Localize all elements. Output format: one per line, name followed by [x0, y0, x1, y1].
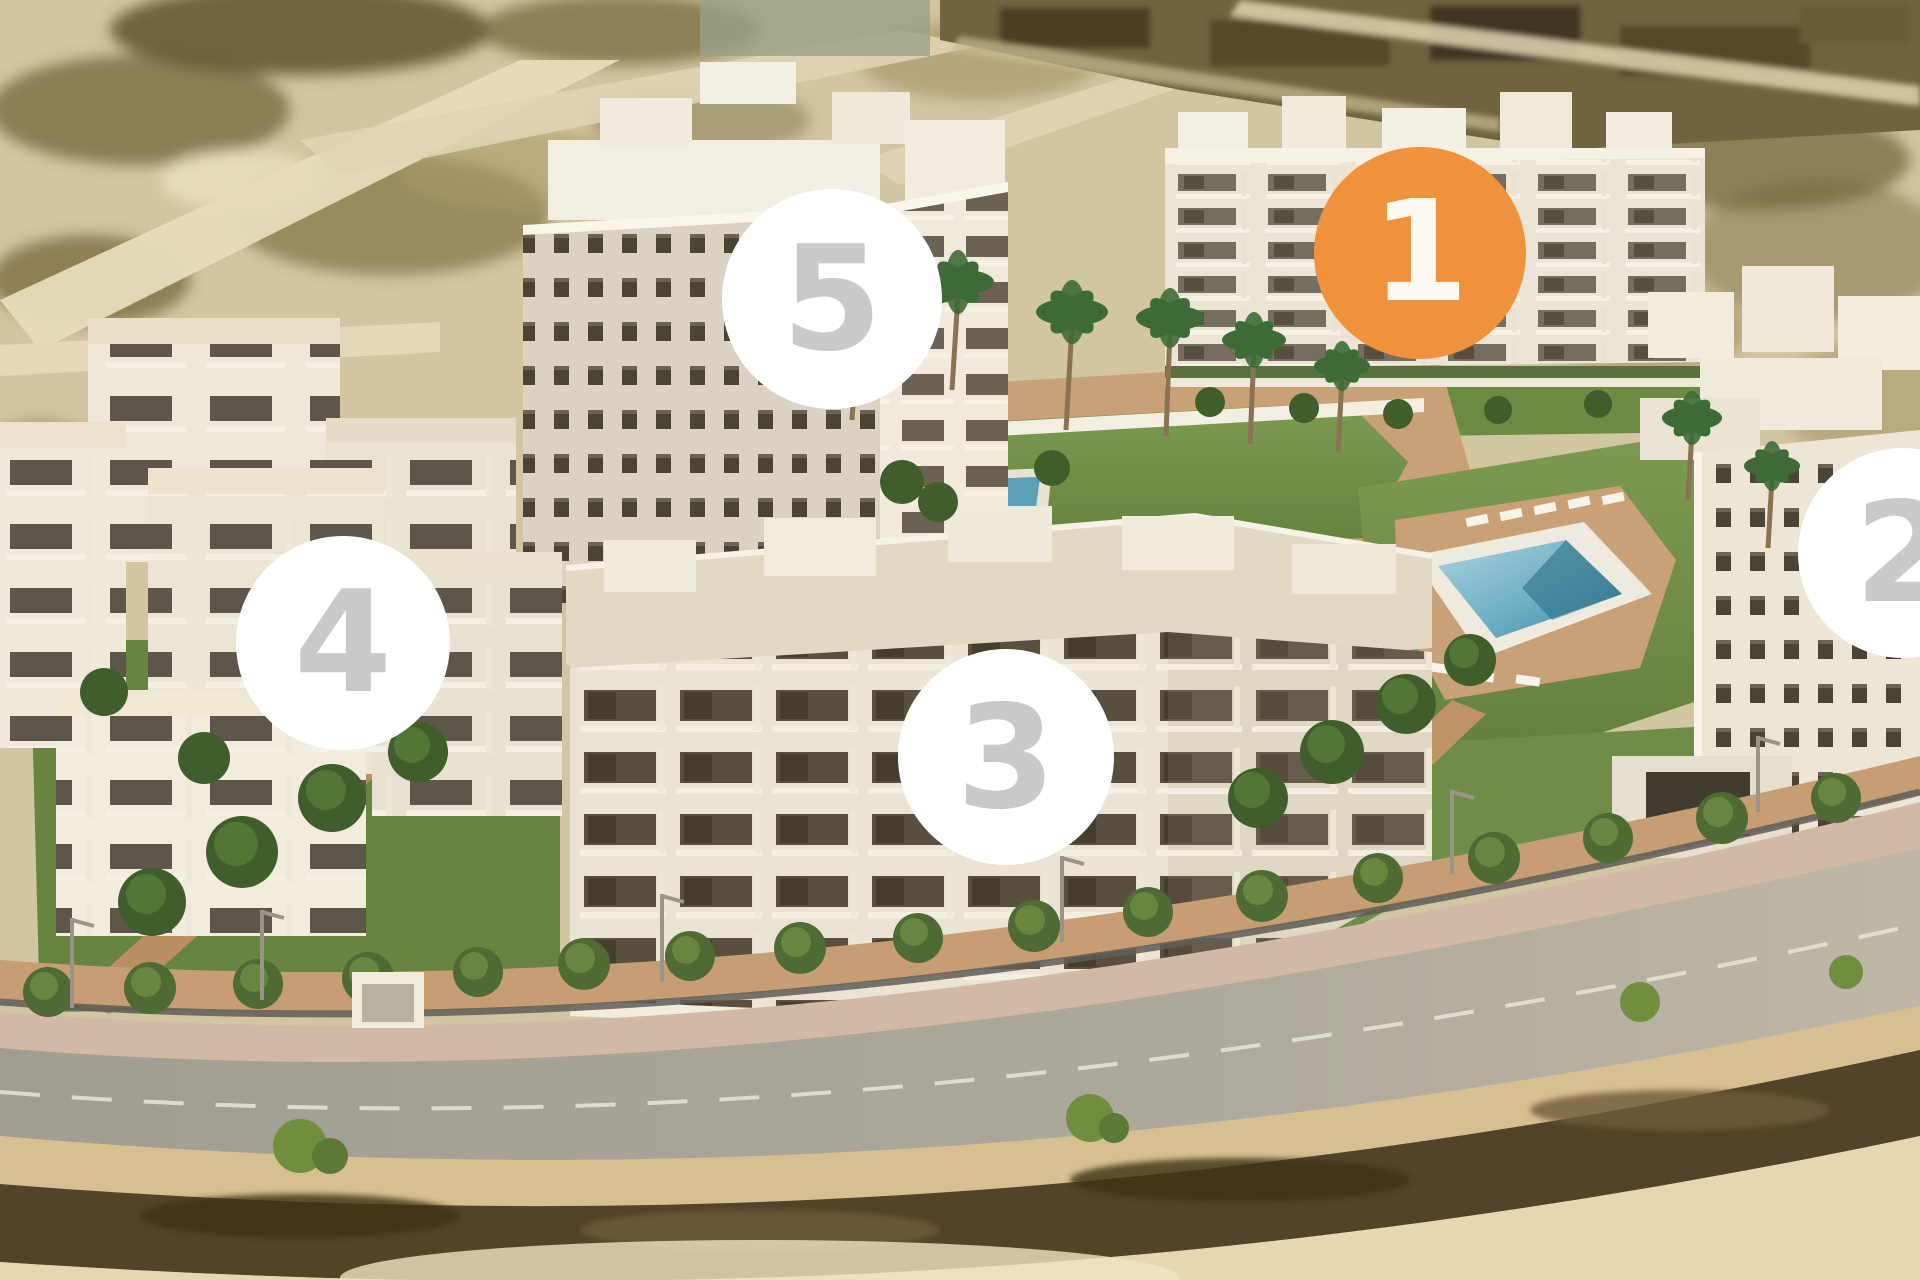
- phase-marker-5[interactable]: 5: [722, 189, 942, 409]
- phase-markers-layer: 12345: [0, 0, 1920, 1280]
- phase-marker-4[interactable]: 4: [236, 536, 450, 750]
- phase-marker-3[interactable]: 3: [898, 649, 1114, 865]
- phase-number: 5: [782, 227, 883, 372]
- phase-number: 4: [294, 573, 392, 714]
- phase-number: 2: [1855, 484, 1920, 623]
- aerial-site-plan: 12345: [0, 0, 1920, 1280]
- phase-marker-1[interactable]: 1: [1314, 147, 1526, 359]
- phase-marker-2[interactable]: 2: [1798, 448, 1920, 658]
- phase-number: 1: [1371, 183, 1468, 323]
- phase-number: 3: [956, 686, 1056, 829]
